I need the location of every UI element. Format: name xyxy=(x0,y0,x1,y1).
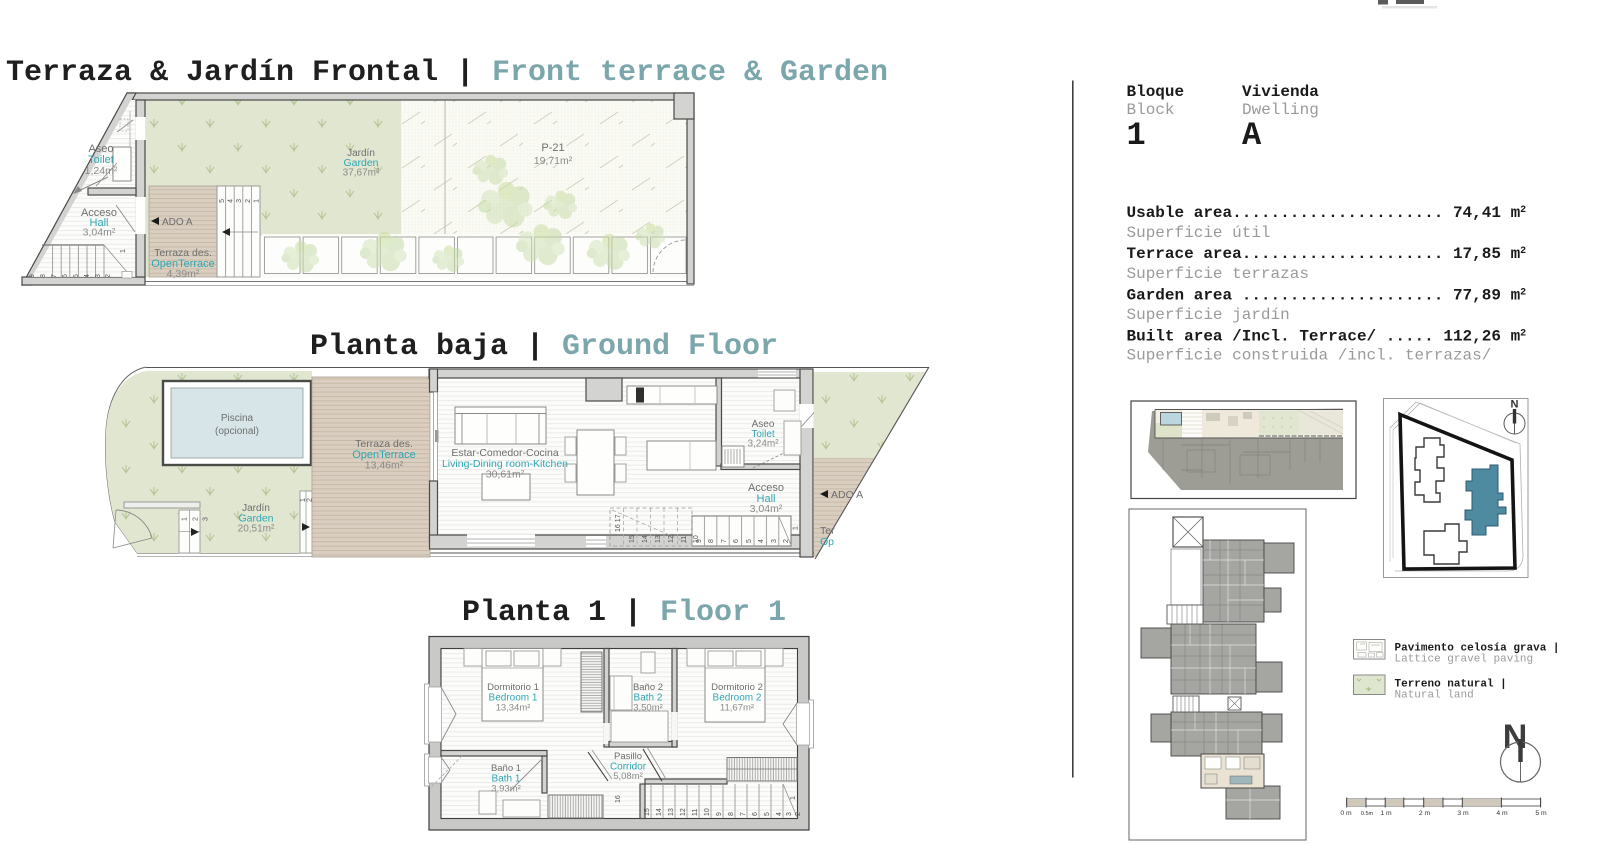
svg-text:8: 8 xyxy=(728,812,735,816)
svg-text:Built area /Incl. Terrace/ ...: Built area /Incl. Terrace/ ..... 112,26 … xyxy=(1127,328,1527,346)
svg-text:10: 10 xyxy=(693,535,700,543)
svg-text:ADO A: ADO A xyxy=(162,217,193,228)
svg-text:Pasillo: Pasillo xyxy=(614,751,642,762)
svg-text:Superficie construida /incl. t: Superficie construida /incl. terrazas/ xyxy=(1127,347,1492,365)
svg-text:Superficie jardín: Superficie jardín xyxy=(1127,306,1290,324)
svg-text:4: 4 xyxy=(758,539,765,543)
svg-text:Op: Op xyxy=(820,536,834,548)
svg-text:P-21: P-21 xyxy=(541,142,564,154)
svg-text:Planta 1 |: Planta 1 | xyxy=(462,596,642,630)
svg-text:6: 6 xyxy=(733,539,740,543)
svg-text:3: 3 xyxy=(95,274,102,278)
svg-text:8: 8 xyxy=(708,539,715,543)
svg-text:Dormitorio 1: Dormitorio 1 xyxy=(487,682,539,693)
svg-text:4: 4 xyxy=(84,274,91,278)
svg-text:4,39m²: 4,39m² xyxy=(167,268,200,280)
svg-text:Terraza & Jardín Frontal |: Terraza & Jardín Frontal | xyxy=(6,56,474,90)
svg-text:2: 2 xyxy=(795,812,802,816)
svg-text:Floor 1: Floor 1 xyxy=(660,596,786,630)
svg-text:4: 4 xyxy=(228,199,235,203)
svg-text:11,67m²: 11,67m² xyxy=(720,703,754,714)
svg-text:Natural land: Natural land xyxy=(1395,690,1474,702)
svg-text:20,51m²: 20,51m² xyxy=(238,524,275,535)
svg-text:A: A xyxy=(1242,117,1262,154)
svg-text:1: 1 xyxy=(253,199,260,203)
svg-text:19,71m²: 19,71m² xyxy=(534,155,573,167)
svg-text:4: 4 xyxy=(776,812,783,816)
svg-text:30,61m²: 30,61m² xyxy=(486,469,525,481)
svg-text:15: 15 xyxy=(629,535,636,543)
svg-text:Superficie útil: Superficie útil xyxy=(1127,224,1271,242)
svg-text:6: 6 xyxy=(62,274,69,278)
svg-text:1: 1 xyxy=(1127,117,1146,154)
svg-text:11: 11 xyxy=(692,809,699,816)
svg-text:5: 5 xyxy=(764,812,771,816)
svg-text:13: 13 xyxy=(655,535,662,543)
svg-text:3: 3 xyxy=(771,539,778,543)
svg-text:1: 1 xyxy=(120,249,127,253)
svg-text:Bloque: Bloque xyxy=(1127,83,1185,101)
svg-text:2: 2 xyxy=(245,199,252,203)
svg-text:Lattice gravel paving: Lattice gravel paving xyxy=(1395,654,1534,666)
svg-text:3: 3 xyxy=(236,199,243,203)
svg-text:12: 12 xyxy=(668,535,675,543)
svg-text:8: 8 xyxy=(40,274,47,278)
svg-text:2 m: 2 m xyxy=(1419,810,1431,817)
svg-text:Baño 2: Baño 2 xyxy=(633,682,663,693)
svg-text:Planta baja |: Planta baja | xyxy=(310,330,544,364)
svg-text:12: 12 xyxy=(680,808,687,816)
svg-text:Superficie terrazas: Superficie terrazas xyxy=(1127,265,1309,283)
svg-text:15: 15 xyxy=(644,808,651,816)
svg-text:2: 2 xyxy=(105,274,112,278)
svg-text:7: 7 xyxy=(740,812,747,816)
svg-text:16 17: 16 17 xyxy=(615,514,622,532)
svg-text:3,04m²: 3,04m² xyxy=(83,227,116,239)
svg-text:2: 2 xyxy=(193,517,200,521)
svg-text:Piscina: Piscina xyxy=(221,413,254,424)
svg-text:5: 5 xyxy=(219,199,226,203)
svg-text:(opcional): (opcional) xyxy=(215,426,259,437)
svg-text:13: 13 xyxy=(668,808,675,816)
svg-text:10: 10 xyxy=(704,808,711,816)
svg-text:Terrace area..................: Terrace area..................... 17,85 … xyxy=(1127,245,1527,263)
svg-text:1: 1 xyxy=(793,526,800,530)
svg-text:3,24m²: 3,24m² xyxy=(747,439,779,450)
svg-text:Front terrace & Garden: Front terrace & Garden xyxy=(492,56,888,90)
svg-text:0 m: 0 m xyxy=(1340,810,1352,817)
svg-text:3 m: 3 m xyxy=(1457,810,1469,817)
svg-text:N: N xyxy=(1503,718,1528,756)
svg-text:0.5m: 0.5m xyxy=(1361,811,1374,817)
svg-text:11: 11 xyxy=(681,536,688,543)
svg-text:Dormitorio 2: Dormitorio 2 xyxy=(711,682,763,693)
svg-text:14: 14 xyxy=(656,808,663,816)
svg-text:13,46m²: 13,46m² xyxy=(365,460,404,472)
svg-text:3,50m²: 3,50m² xyxy=(633,703,663,714)
svg-text:37,67m²: 37,67m² xyxy=(343,168,380,179)
svg-text:3,93m²: 3,93m² xyxy=(491,784,521,795)
svg-text:14: 14 xyxy=(642,535,649,543)
svg-text:3,04m²: 3,04m² xyxy=(750,503,783,515)
svg-text:Usable area...................: Usable area...................... 74,41 … xyxy=(1127,204,1527,222)
svg-text:5: 5 xyxy=(73,274,80,278)
svg-text:Baño 1: Baño 1 xyxy=(491,763,521,774)
svg-text:7: 7 xyxy=(51,274,58,278)
svg-text:Garden area ..................: Garden area ..................... 77,89 … xyxy=(1127,287,1527,305)
svg-text:Vivienda: Vivienda xyxy=(1242,83,1319,101)
svg-text:N: N xyxy=(1511,399,1519,411)
svg-text:1,24m²: 1,24m² xyxy=(85,165,118,177)
svg-text:ADO A: ADO A xyxy=(831,489,863,501)
svg-text:9: 9 xyxy=(29,274,36,278)
svg-text:Ground Floor: Ground Floor xyxy=(562,330,778,364)
svg-text:13,34m²: 13,34m² xyxy=(496,703,531,714)
svg-text:1: 1 xyxy=(790,796,797,800)
svg-text:2: 2 xyxy=(783,539,790,543)
svg-text:16: 16 xyxy=(615,795,622,803)
svg-text:3: 3 xyxy=(203,517,210,521)
svg-text:9: 9 xyxy=(716,812,723,816)
svg-text:5,08m²: 5,08m² xyxy=(613,771,643,782)
svg-text:3: 3 xyxy=(786,812,793,816)
svg-text:4 m: 4 m xyxy=(1496,810,1508,817)
svg-text:1: 1 xyxy=(182,517,189,521)
svg-text:7: 7 xyxy=(721,539,728,543)
svg-text:6: 6 xyxy=(752,812,759,816)
svg-text:5: 5 xyxy=(746,539,753,543)
svg-text:1 m: 1 m xyxy=(1380,810,1392,817)
svg-text:5 m: 5 m xyxy=(1535,810,1547,817)
